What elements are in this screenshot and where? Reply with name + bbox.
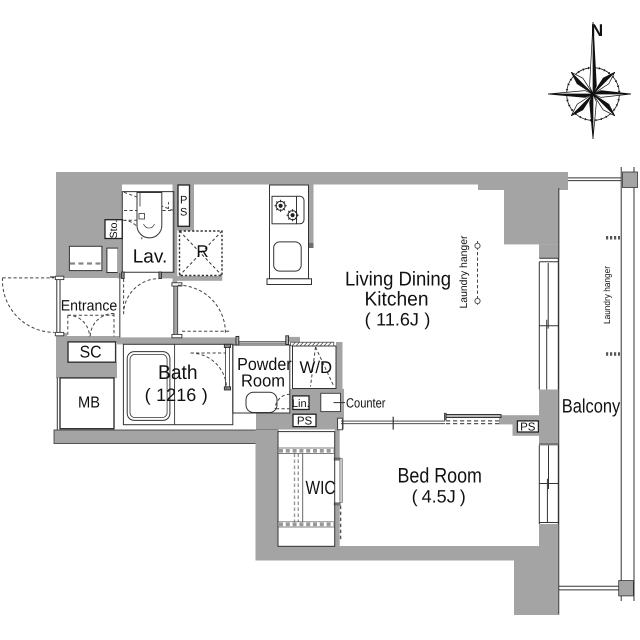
svg-text:P: P	[180, 195, 187, 207]
svg-text:Lav.: Lav.	[133, 247, 168, 268]
svg-text:PS: PS	[520, 421, 536, 433]
svg-text:Laundry hanger: Laundry hanger	[458, 235, 470, 308]
svg-text:Sto.: Sto.	[108, 220, 120, 239]
svg-text:Laundry hanger: Laundry hanger	[602, 266, 612, 324]
svg-text:Balcony: Balcony	[562, 396, 621, 418]
svg-text:PS: PS	[297, 416, 313, 428]
svg-text:S: S	[180, 207, 187, 219]
svg-text:Living Dining: Living Dining	[345, 268, 451, 290]
svg-text:Lin.: Lin.	[292, 398, 310, 410]
svg-text:SC: SC	[80, 343, 102, 362]
svg-text:N: N	[591, 21, 603, 40]
svg-text:W/D: W/D	[300, 358, 333, 377]
svg-text:Room: Room	[241, 370, 285, 390]
svg-text:MB: MB	[78, 395, 100, 412]
svg-text:WIC: WIC	[306, 478, 336, 499]
svg-text:Counter: Counter	[346, 395, 386, 410]
svg-text:Bed Room: Bed Room	[397, 464, 482, 487]
svg-text:Entrance: Entrance	[61, 298, 118, 315]
svg-text:R: R	[196, 242, 208, 261]
svg-text:Kitchen: Kitchen	[365, 289, 429, 311]
svg-text:Bath: Bath	[158, 362, 198, 384]
